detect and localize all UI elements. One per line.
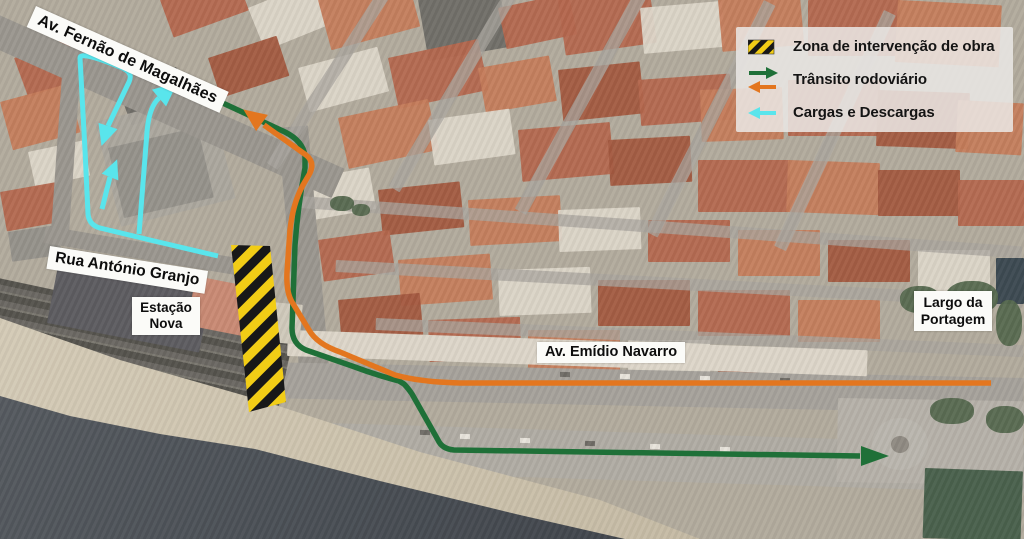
road-traffic-arrows-icon: [748, 66, 782, 93]
loading-arrow-icon-wrap: [748, 106, 782, 119]
parked-vehicle: [650, 444, 660, 449]
map-block: [640, 1, 726, 54]
map-block: [923, 468, 1023, 539]
legend-label-road-traffic: Trânsito rodoviário: [793, 71, 927, 88]
tree-canopy: [930, 398, 974, 424]
legend-label-loading-unloading: Cargas e Descargas: [793, 104, 935, 121]
parked-vehicle: [720, 447, 730, 452]
parked-vehicle: [460, 434, 470, 439]
orange-left-arrow-icon: [748, 80, 780, 93]
parked-vehicle: [420, 430, 430, 435]
roundabout-center: [891, 436, 909, 453]
tree-canopy: [330, 196, 354, 211]
parked-vehicle: [585, 441, 595, 446]
map-block: [245, 300, 303, 345]
street-label-av-emidio-navarro: Av. Emídio Navarro: [537, 342, 685, 363]
construction-detour-map: Av. Fernão de Magalhães Rua António Gran…: [0, 0, 1024, 539]
legend-item-construction-zone: Zona de intervenção de obra: [748, 38, 1001, 55]
tree-canopy: [986, 406, 1024, 433]
map-block: [160, 0, 249, 38]
map-block: [478, 55, 557, 113]
map-block: [698, 290, 790, 336]
tree-canopy: [352, 204, 370, 216]
map-block: [996, 258, 1024, 304]
parked-vehicle: [780, 378, 790, 383]
legend-item-loading-unloading: Cargas e Descargas: [748, 104, 1001, 121]
place-label-largo-da-portagem: Largo da Portagem: [914, 291, 992, 331]
cyan-left-arrow-icon: [748, 106, 780, 119]
place-label-largo-line1: Largo da: [916, 294, 990, 311]
map-block: [878, 170, 960, 216]
parked-vehicle: [700, 376, 710, 381]
place-label-estacao-nova: Estação Nova: [132, 297, 200, 335]
green-right-arrow-icon: [748, 66, 780, 79]
legend-label-construction-zone: Zona de intervenção de obra: [793, 38, 995, 55]
parked-vehicle: [520, 438, 530, 443]
place-label-estacao-line2: Nova: [134, 316, 198, 332]
parked-vehicle: [560, 372, 570, 377]
tree-canopy: [996, 300, 1022, 346]
parked-vehicle: [620, 374, 630, 379]
place-label-estacao-line1: Estação: [134, 300, 198, 316]
place-label-largo-line2: Portagem: [916, 311, 990, 328]
hazard-stripes-icon: [748, 39, 782, 55]
map-legend: Zona de intervenção de obra Trânsito rod…: [736, 27, 1013, 132]
map-block: [698, 160, 790, 212]
legend-item-road-traffic: Trânsito rodoviário: [748, 66, 1001, 93]
map-block: [958, 180, 1024, 226]
